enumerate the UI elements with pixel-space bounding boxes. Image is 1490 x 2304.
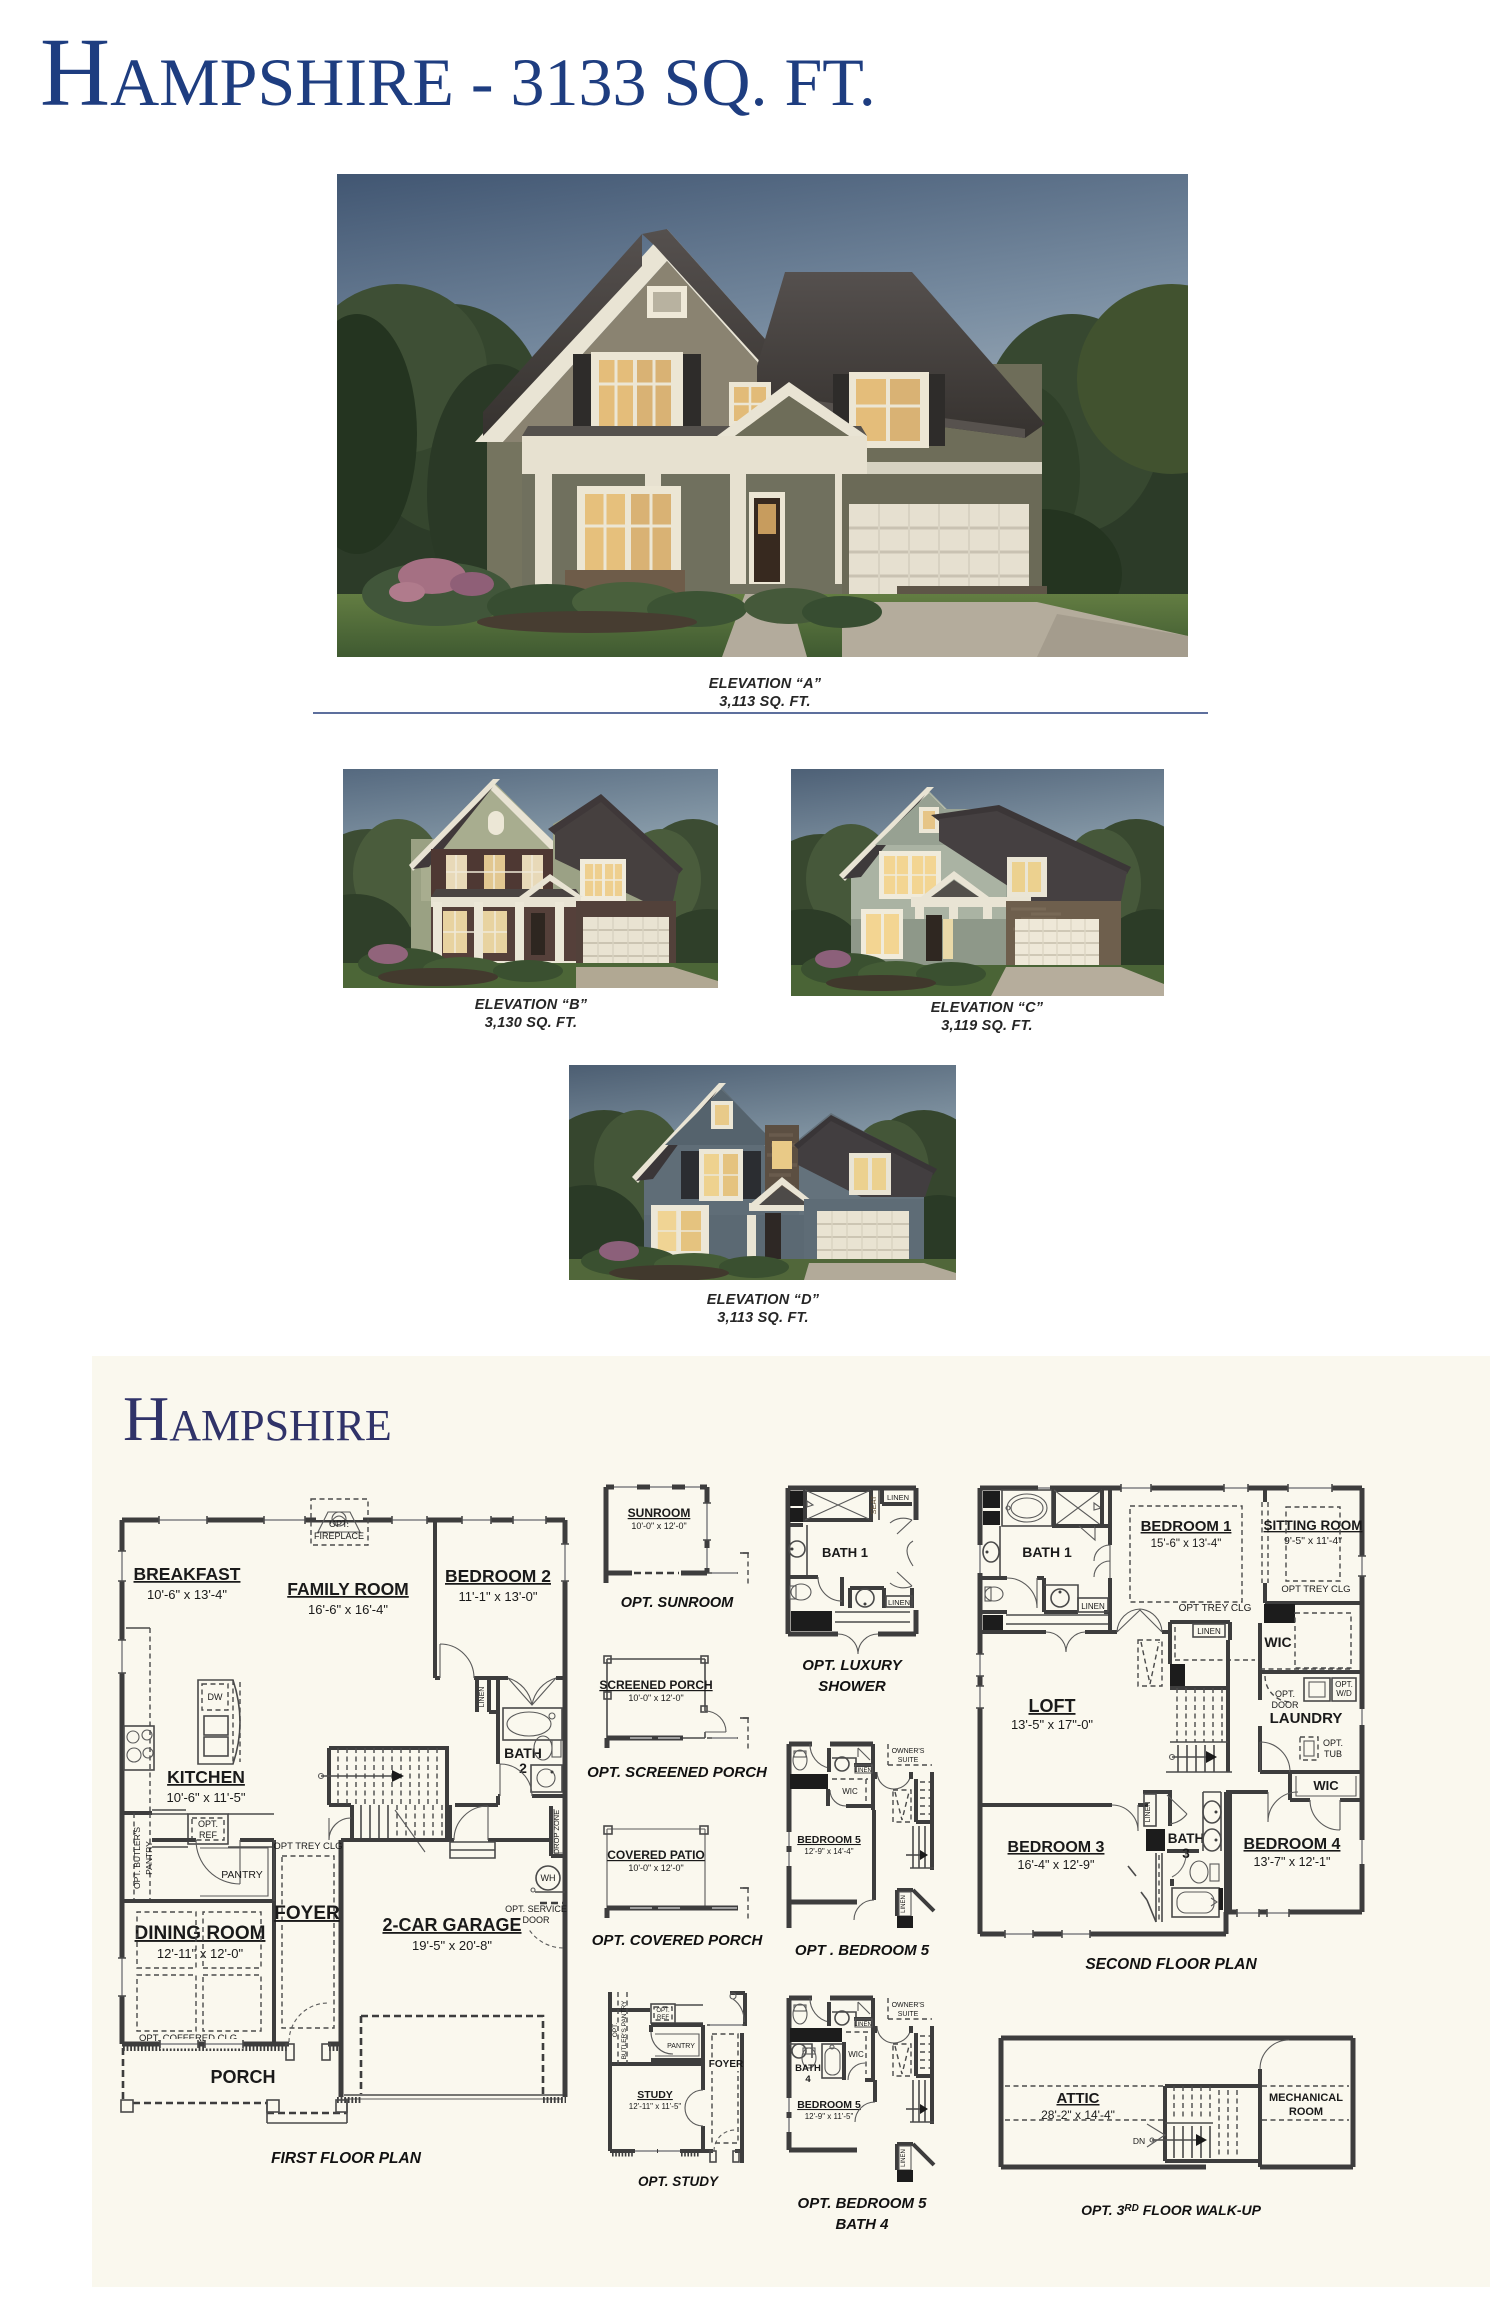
svg-text:LOFT: LOFT [1029, 1696, 1076, 1716]
svg-text:LINEN: LINEN [901, 1895, 907, 1913]
svg-text:WH: WH [541, 1873, 556, 1883]
svg-text:15'-6" x 13'-4": 15'-6" x 13'-4" [1151, 1538, 1222, 1550]
svg-text:OPT.: OPT. [656, 2008, 670, 2014]
svg-text:DROP ZONE: DROP ZONE [552, 1810, 561, 1854]
svg-text:PORCH: PORCH [210, 2067, 275, 2087]
svg-text:BEDROOM 4: BEDROOM 4 [1244, 1836, 1341, 1853]
svg-text:MECHANICAL: MECHANICAL [1269, 2092, 1343, 2104]
svg-text:OPT.: OPT. [1323, 1738, 1343, 1748]
svg-text:OPT TREY CLG: OPT TREY CLG [1179, 1603, 1252, 1614]
svg-text:BEDROOM 3: BEDROOM 3 [1008, 1839, 1105, 1856]
svg-text:13'-7" x 12'-1": 13'-7" x 12'-1" [1254, 1855, 1331, 1869]
svg-text:DINING ROOM: DINING ROOM [135, 1923, 266, 1944]
svg-text:BATH 1: BATH 1 [1022, 1544, 1072, 1560]
svg-text:BATH: BATH [504, 1745, 542, 1761]
svg-text:16'-4" x 12'-9": 16'-4" x 12'-9" [1018, 1858, 1095, 1872]
svg-text:LINEN: LINEN [1197, 1627, 1221, 1636]
svg-text:ATTIC: ATTIC [1056, 2090, 1099, 2107]
svg-text:SUITE: SUITE [898, 1757, 919, 1764]
svg-text:SCREENED PORCH: SCREENED PORCH [599, 1678, 712, 1692]
svg-text:COVERED PATIO: COVERED PATIO [607, 1848, 705, 1862]
svg-text:DOOR: DOOR [1272, 1700, 1300, 1710]
svg-text:OPT.: OPT. [1335, 1680, 1353, 1689]
svg-text:10'-0" x 12'-0": 10'-0" x 12'-0" [631, 1521, 686, 1531]
svg-text:LINEN: LINEN [888, 1598, 910, 1607]
svg-text:LAUNDRY: LAUNDRY [1270, 1710, 1343, 1727]
svg-text:W/D: W/D [1336, 1689, 1352, 1698]
svg-text:LINEN: LINEN [854, 2022, 872, 2028]
svg-text:OPT.: OPT. [329, 1519, 349, 1529]
svg-text:FIREPLACE: FIREPLACE [314, 1531, 364, 1541]
svg-text:REF: REF [657, 2015, 669, 2021]
svg-text:10'-0" x 12'-0": 10'-0" x 12'-0" [628, 1693, 683, 1703]
svg-text:11'-1" x 13'-0": 11'-1" x 13'-0" [459, 1589, 538, 1604]
svg-text:OPT TREY CLG: OPT TREY CLG [273, 1841, 342, 1852]
svg-text:LINEN: LINEN [901, 2149, 907, 2167]
svg-text:SEAT: SEAT [869, 1495, 878, 1514]
svg-text:PANTRY: PANTRY [144, 1841, 154, 1875]
svg-text:BUTLER'S PANTRY: BUTLER'S PANTRY [621, 2000, 628, 2059]
svg-text:4: 4 [805, 2074, 811, 2085]
svg-text:OWNER'S: OWNER'S [892, 1748, 925, 1755]
svg-text:OPT TREY CLG: OPT TREY CLG [1281, 1584, 1350, 1595]
svg-text:13'-5" x 17"-0": 13'-5" x 17"-0" [1011, 1717, 1093, 1732]
svg-text:BATH 1: BATH 1 [822, 1545, 868, 1560]
svg-text:DN: DN [1133, 2136, 1145, 2146]
svg-text:LINEN: LINEN [1145, 1802, 1152, 1823]
svg-text:OWNER'S: OWNER'S [892, 2002, 925, 2009]
svg-text:10'-0" x 12'-0": 10'-0" x 12'-0" [628, 1863, 683, 1873]
svg-text:BATH: BATH [1168, 1831, 1205, 1846]
svg-text:12'-9" x 11'-5": 12'-9" x 11'-5" [805, 2112, 854, 2121]
svg-text:16'-6" x 16'-4": 16'-6" x 16'-4" [308, 1602, 388, 1617]
svg-text:BEDROOM 5: BEDROOM 5 [797, 2099, 861, 2111]
svg-text:ROOM: ROOM [1289, 2106, 1323, 2118]
svg-text:SUNROOM: SUNROOM [628, 1506, 691, 1520]
svg-text:12'-11" x 11'-5": 12'-11" x 11'-5" [629, 2102, 682, 2111]
svg-text:WIC: WIC [1264, 1634, 1291, 1650]
svg-text:OPT.: OPT. [198, 1819, 218, 1829]
svg-text:REF: REF [199, 1830, 218, 1840]
svg-text:TUB: TUB [1324, 1749, 1342, 1759]
svg-text:OPT.: OPT. [1275, 1689, 1295, 1699]
svg-text:9'-5" x 11'-4": 9'-5" x 11'-4" [1284, 1535, 1342, 1547]
svg-text:BEDROOM 2: BEDROOM 2 [445, 1566, 551, 1586]
svg-text:WIC: WIC [842, 1787, 858, 1796]
svg-text:10'-6" x 11'-5": 10'-6" x 11'-5" [167, 1790, 246, 1805]
svg-text:PANTRY: PANTRY [667, 2043, 695, 2050]
svg-text:WIC: WIC [1313, 1778, 1339, 1793]
svg-text:12'-9" x 14'-4": 12'-9" x 14'-4" [804, 1847, 853, 1856]
svg-text:PANTRY: PANTRY [221, 1869, 263, 1881]
svg-text:BREAKFAST: BREAKFAST [134, 1564, 241, 1584]
svg-text:BATH: BATH [795, 2063, 821, 2074]
svg-text:19'-5" x 20'-8": 19'-5" x 20'-8" [412, 1938, 492, 1953]
svg-text:DW: DW [208, 1692, 223, 1702]
svg-text:KITCHEN: KITCHEN [167, 1767, 245, 1787]
svg-text:28'-2" x 14'-4": 28'-2" x 14'-4" [1041, 2108, 1115, 2122]
svg-text:BEDROOM 5: BEDROOM 5 [797, 1834, 861, 1846]
svg-text:OPT. BUTLER'S: OPT. BUTLER'S [132, 1827, 142, 1889]
svg-text:DOOR: DOOR [523, 1915, 551, 1925]
svg-text:SITTING ROOM: SITTING ROOM [1264, 1518, 1363, 1533]
svg-text:LINEN: LINEN [887, 1493, 909, 1502]
svg-text:12'-11" x 12'-0": 12'-11" x 12'-0" [157, 1946, 244, 1961]
svg-text:FOYER: FOYER [274, 1903, 340, 1924]
svg-text:OPT.: OPT. [612, 2023, 619, 2038]
svg-text:OPT. SERVICE: OPT. SERVICE [505, 1904, 567, 1914]
svg-text:BEDROOM 1: BEDROOM 1 [1141, 1518, 1232, 1535]
svg-text:LINEN: LINEN [1081, 1602, 1105, 1611]
svg-text:2-CAR GARAGE: 2-CAR GARAGE [382, 1915, 521, 1935]
svg-text:10'-6" x 13'-4": 10'-6" x 13'-4" [147, 1587, 227, 1602]
svg-text:STUDY: STUDY [637, 2089, 673, 2101]
svg-text:WIC: WIC [848, 2050, 864, 2059]
svg-text:FOYER: FOYER [709, 2059, 744, 2070]
svg-text:SUITE: SUITE [898, 2011, 919, 2018]
svg-text:LINEN: LINEN [479, 1687, 486, 1708]
svg-text:FAMILY ROOM: FAMILY ROOM [287, 1579, 409, 1599]
